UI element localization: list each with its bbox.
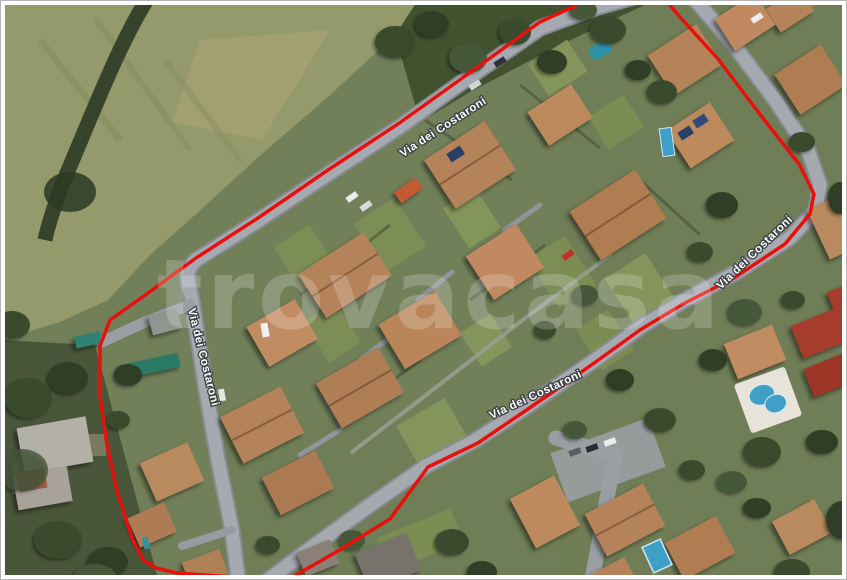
- satellite-map-canvas: trovacasa Via dei Costaroni Via dei Cost…: [0, 0, 847, 580]
- satellite-photo: trovacasa Via dei Costaroni Via dei Cost…: [0, 0, 847, 580]
- watermark: trovacasa: [157, 239, 723, 351]
